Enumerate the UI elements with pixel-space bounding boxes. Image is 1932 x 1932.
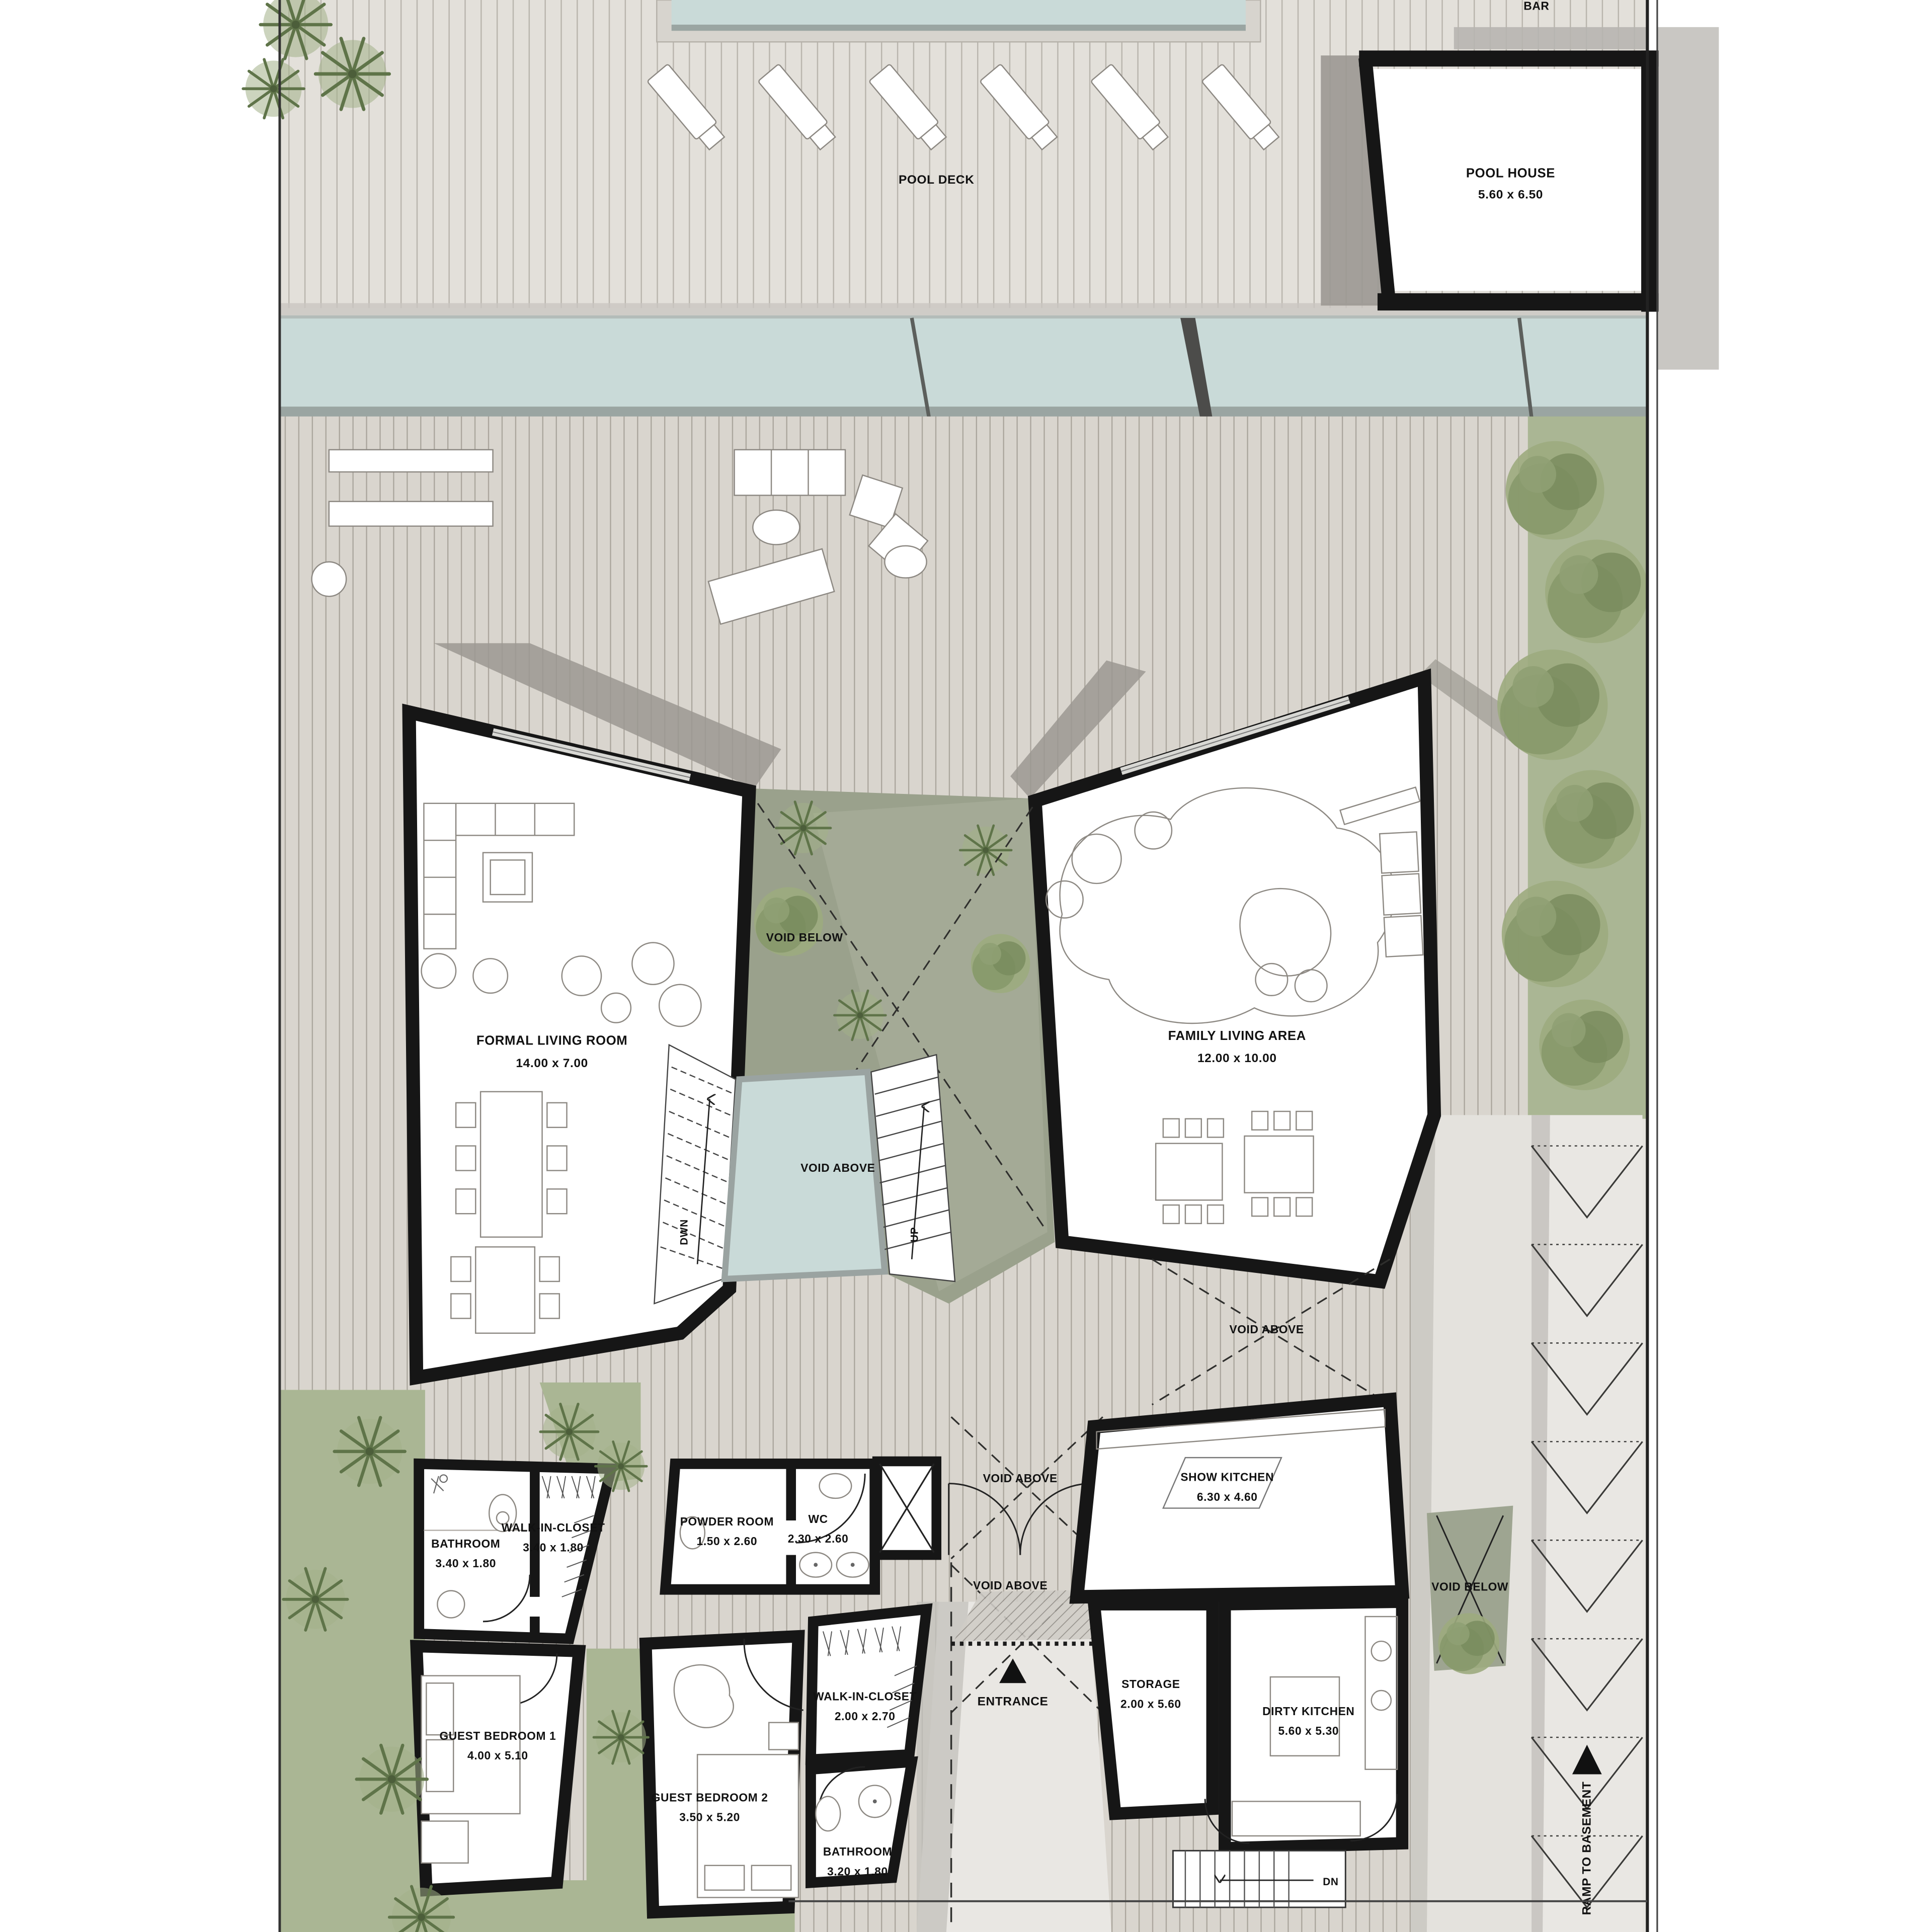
void-above-label-door: VOID ABOVE xyxy=(983,1472,1058,1485)
dirty-kitchen-label: DIRTY KITCHEN xyxy=(1262,1705,1354,1718)
powder-room-label: POWDER ROOM xyxy=(680,1515,774,1528)
void-above-label-stair: VOID ABOVE xyxy=(800,1161,875,1174)
stair-up-label: UP xyxy=(909,1227,920,1242)
void-above-label-path: VOID ABOVE xyxy=(973,1579,1048,1592)
guest-bedroom1-label: GUEST BEDROOM 1 xyxy=(439,1729,556,1742)
family-living-label: FAMILY LIVING AREA xyxy=(1168,1029,1306,1043)
ramp-to-basement: RAMP TO BASEMENT xyxy=(1532,1115,1642,1932)
bathroom2-label: BATHROOM xyxy=(823,1845,892,1858)
entrance-path xyxy=(917,1602,1111,1932)
guest-bedroom2-label: GUEST BEDROOM 2 xyxy=(652,1791,768,1804)
wic1-label: WALK-IN-CLOSET xyxy=(502,1521,605,1534)
bar-deck: BAR xyxy=(1454,0,1647,49)
wc-label: WC xyxy=(809,1512,828,1525)
wic1-dims: 3.40 x 1.80 xyxy=(523,1541,584,1554)
bathroom1-label: BATHROOM xyxy=(431,1537,500,1550)
pool-deck-label: POOL DECK xyxy=(899,173,975,187)
show-kitchen-label: SHOW KITCHEN xyxy=(1180,1471,1274,1484)
bathroom2-dims: 3.20 x 1.80 xyxy=(827,1865,888,1878)
neighbour-strip xyxy=(1657,27,1719,370)
storage-label: STORAGE xyxy=(1121,1677,1180,1691)
wc-dims: 2.30 x 2.60 xyxy=(788,1532,849,1545)
stair-water-feature xyxy=(725,1072,884,1279)
void-below-label-east: VOID BELOW xyxy=(1431,1580,1508,1593)
guest-bedroom-2-block: GUEST BEDROOM 2 3.50 x 5.20 WALK-IN-CLOS… xyxy=(646,1609,926,1912)
void-below-label: VOID BELOW xyxy=(766,931,843,944)
basement-stair: DN xyxy=(1173,1850,1345,1907)
entrance-label: ENTRANCE xyxy=(978,1695,1049,1708)
pool-house-dims: 5.60 x 6.50 xyxy=(1478,188,1543,201)
formal-living-label: FORMAL LIVING ROOM xyxy=(476,1034,627,1048)
guest-bedroom1-dims: 4.00 x 5.10 xyxy=(467,1749,528,1762)
void-above-label-deck: VOID ABOVE xyxy=(1229,1323,1304,1336)
floor-plan: RAMP TO BASEMENT BAR POOL DECK xyxy=(0,0,1932,1932)
swimming-pool xyxy=(657,0,1260,42)
wic2-dims: 2.00 x 2.70 xyxy=(835,1710,896,1723)
void-below-east: VOID BELOW xyxy=(1427,1506,1513,1674)
pool-house-label: POOL HOUSE xyxy=(1466,167,1555,181)
stair-dn-label: DN xyxy=(1323,1876,1338,1888)
guest-bedroom2-dims: 3.50 x 5.20 xyxy=(679,1811,740,1824)
formal-living-dims: 14.00 x 7.00 xyxy=(516,1057,588,1070)
central-stair-core: DWN UP VOID ABOVE xyxy=(654,1045,955,1304)
show-kitchen-dims: 6.30 x 4.60 xyxy=(1197,1490,1258,1503)
stair-down-label: DWN xyxy=(679,1219,690,1245)
wic2-room xyxy=(811,1609,926,1759)
powder-room-dims: 1.50 x 2.60 xyxy=(697,1535,758,1548)
bar-label: BAR xyxy=(1523,0,1549,13)
guest-bedroom-1: GUEST BEDROOM 1 4.00 x 5.10 xyxy=(417,1646,579,1890)
ramp-label: RAMP TO BASEMENT xyxy=(1580,1782,1594,1915)
bathroom1-dims: 3.40 x 1.80 xyxy=(435,1557,496,1570)
pool-house: POOL HOUSE 5.60 x 6.50 xyxy=(1321,50,1658,311)
dirty-kitchen-dims: 5.60 x 5.30 xyxy=(1278,1724,1339,1737)
family-living-dims: 12.00 x 10.00 xyxy=(1197,1052,1277,1065)
wic2-label: WALK-IN-CLOSET xyxy=(813,1690,917,1703)
storage-dims: 2.00 x 5.60 xyxy=(1120,1697,1181,1710)
reflecting-pool xyxy=(280,315,1647,418)
